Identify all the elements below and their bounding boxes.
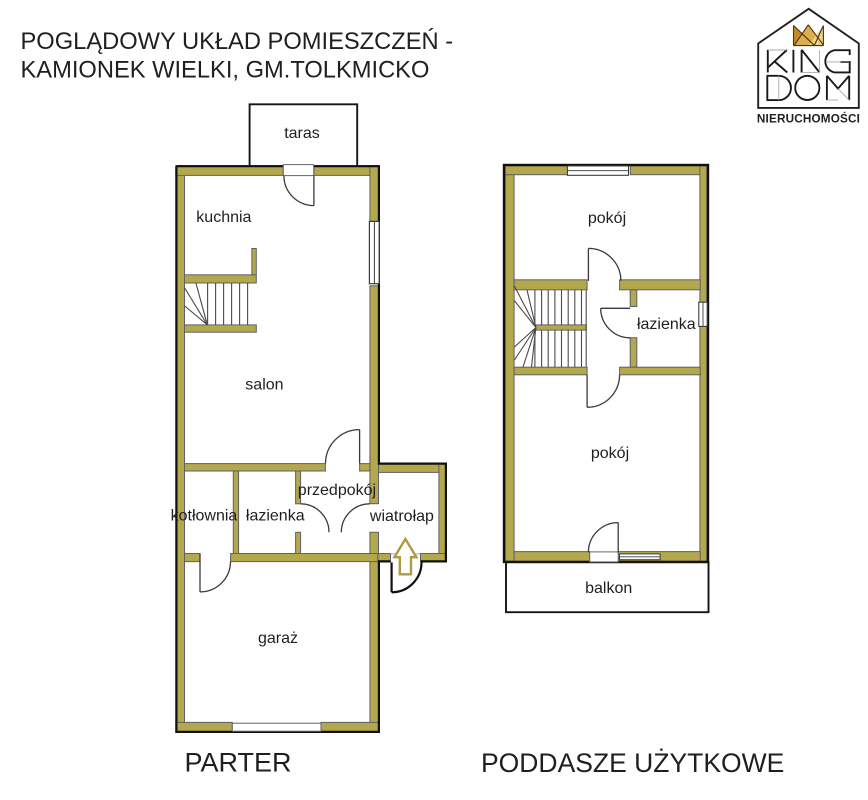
svg-text:łazienka: łazienka [246,508,305,525]
svg-text:kuchnia: kuchnia [196,209,251,226]
svg-text:pokój: pokój [588,210,626,227]
svg-text:PODDASZE UŻYTKOWE: PODDASZE UŻYTKOWE [481,748,784,778]
svg-text:NIERUCHOMOŚCI: NIERUCHOMOŚCI [757,112,860,125]
svg-text:kotłownia: kotłownia [171,508,238,525]
svg-text:KAMIONEK WIELKI, GM.TOLKMICKO: KAMIONEK WIELKI, GM.TOLKMICKO [21,58,430,84]
svg-text:wiatrołap: wiatrołap [369,508,434,525]
svg-text:PARTER: PARTER [185,748,292,778]
svg-text:garaż: garaż [258,630,298,647]
svg-text:pokój: pokój [591,445,629,462]
svg-text:łazienka: łazienka [637,316,696,333]
svg-text:taras: taras [284,125,320,142]
svg-text:salon: salon [245,377,283,394]
svg-text:balkon: balkon [585,580,632,597]
svg-text:POGLĄDOWY UKŁAD POMIESZCZEŃ -: POGLĄDOWY UKŁAD POMIESZCZEŃ - [21,28,454,55]
svg-text:przedpokój: przedpokój [298,482,376,499]
